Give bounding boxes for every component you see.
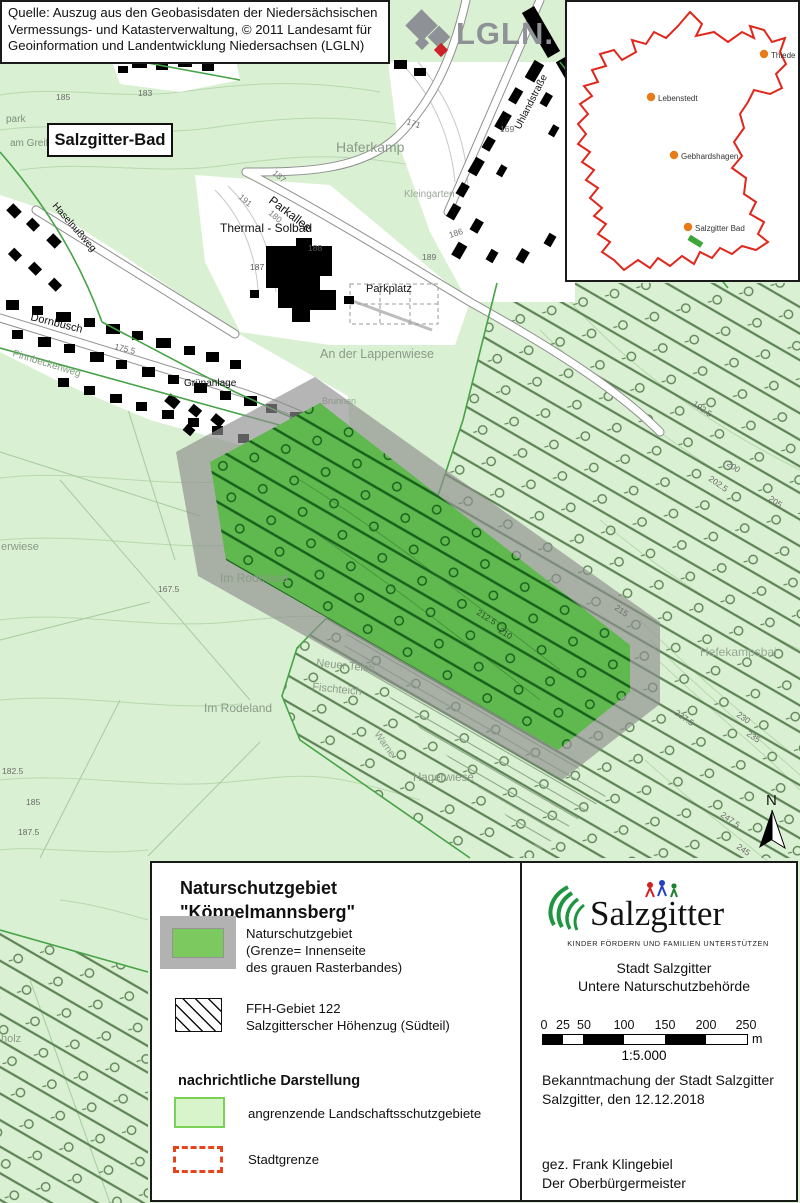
- map-label-im-rodeland-a: Im Rodeland: [220, 571, 288, 585]
- legend-swatch-stadtgrenze: [173, 1146, 223, 1173]
- elevation-label: 185: [56, 92, 70, 102]
- signature-block: gez. Frank Klingebiel Der Oberbürgermeis…: [542, 1155, 686, 1193]
- salzgitter-wordmark: Salzgitter: [590, 894, 724, 933]
- map-label-holz: holz: [1, 1033, 21, 1045]
- inset-place-label: Lebenstedt: [658, 94, 698, 103]
- inset-place-label: Salzgitter Bad: [695, 224, 745, 233]
- scale-tick: 25: [556, 1018, 570, 1032]
- authority-line1: Stadt Salzgitter: [544, 959, 784, 977]
- signature-line2: Der Oberbürgermeister: [542, 1174, 686, 1193]
- map-label-kleingarten: Kleingarten: [404, 189, 455, 200]
- source-note-line3: Geoinformation und Landentwicklung Niede…: [8, 38, 382, 55]
- map-label-erwiese: erwiese: [1, 541, 39, 553]
- announcement-block: Bekanntmachung der Stadt Salzgitter Salz…: [542, 1071, 774, 1109]
- city-boundary: [578, 12, 786, 270]
- announcement-line1: Bekanntmachung der Stadt Salzgitter: [542, 1071, 774, 1090]
- map-label-haferkamp: Haferkamp: [336, 139, 405, 155]
- legend-item-nsg: Naturschutzgebiet (Grenze= Innenseite de…: [246, 925, 402, 976]
- map-label-brunnen: Brunnen: [322, 396, 356, 406]
- scale-tick: 50: [577, 1018, 591, 1032]
- legend-item-ffh-line2: Salzgitterscher Höhenzug (Südteil): [246, 1017, 450, 1034]
- elevation-label: 169: [500, 124, 514, 134]
- authority-block: Stadt Salzgitter Untere Naturschutzbehör…: [544, 959, 784, 995]
- overview-inset: Thiede Lebenstedt Gebhardshagen Salzgitt…: [565, 0, 800, 282]
- salzgitter-tagline: KINDER FÖRDERN UND FAMILIEN UNTERSTÜTZEN: [548, 939, 788, 948]
- signature-line1: gez. Frank Klingebiel: [542, 1155, 686, 1174]
- scale-bar-segments: [542, 1034, 748, 1045]
- map-label-hefekampsbai: Hefekampsbai: [700, 645, 777, 659]
- scale-tick: 250: [736, 1018, 757, 1032]
- elevation-label: 167.5: [158, 584, 180, 594]
- salzgitter-swoosh-icon: [550, 887, 584, 930]
- scale-ratio: 1:5.000: [621, 1048, 666, 1063]
- legend-box: Naturschutzgebiet "Köppelmannsberg" Natu…: [150, 861, 798, 1202]
- scale-bar: 0 25 50 100 150 200 250 m 1:5.000: [542, 1018, 762, 1064]
- elevation-label: 183: [138, 88, 152, 98]
- place-dot: [760, 50, 768, 58]
- map-label-park: park: [6, 114, 26, 125]
- map-label-parkplatz: Parkplatz: [366, 283, 412, 295]
- inset-canvas: Thiede Lebenstedt Gebhardshagen Salzgitt…: [567, 2, 798, 280]
- legend-swatch-nsg: [160, 916, 236, 969]
- map-sheet: park am Greif Haferkamp Kleingarten Uhla…: [0, 0, 800, 1203]
- legend-swatch-ffh: [175, 998, 222, 1032]
- elevation-label: 187: [250, 262, 264, 272]
- legend-item-nsg-line2: (Grenze= Innenseite: [246, 942, 402, 959]
- legend-item-ffh: FFH-Gebiet 122 Salzgitterscher Höhenzug …: [246, 1000, 450, 1034]
- elevation-label: 187.5: [18, 827, 40, 837]
- legend-item-ffh-line1: FFH-Gebiet 122: [246, 1000, 450, 1017]
- map-label-hagerwiese: Hagerwiese: [413, 772, 474, 784]
- nsg-location-marker: [687, 235, 703, 248]
- scale-tick: 0: [541, 1018, 548, 1032]
- place-dot: [670, 151, 678, 159]
- map-label-lappenwiese: An der Lappenwiese: [320, 347, 434, 361]
- legend-divider: [520, 863, 522, 1200]
- city-name-box: Salzgitter-Bad: [47, 123, 173, 157]
- map-label-gruenanlage: Grünanlage: [184, 378, 237, 389]
- legend-item-lsg: angrenzende Landschaftsschutzgebiete: [248, 1105, 481, 1122]
- legend-swatch-nsg-core: [172, 928, 224, 958]
- source-note-line1: Quelle: Auszug aus den Geobasisdaten der…: [8, 5, 382, 22]
- source-note-line2: Vermessungs- und Katasterverwaltung, © 2…: [8, 22, 382, 39]
- authority-line2: Untere Naturschutzbehörde: [544, 977, 784, 995]
- elevation-label: 185: [26, 797, 40, 807]
- inset-place-label: Thiede: [771, 51, 796, 60]
- legend-heading-info: nachrichtliche Darstellung: [178, 1073, 360, 1089]
- legend-title-line1: Naturschutzgebiet: [180, 876, 355, 900]
- legend-item-stadtgrenze: Stadtgrenze: [248, 1151, 319, 1168]
- scale-tick: 100: [614, 1018, 635, 1032]
- announcement-line2: Salzgitter, den 12.12.2018: [542, 1090, 774, 1109]
- elevation-label: 188: [308, 243, 322, 253]
- elevation-label: 189: [422, 252, 436, 262]
- map-label-am-greif: am Greif: [10, 138, 49, 149]
- salzgitter-logo: Salzgitter: [544, 879, 784, 941]
- legend-item-nsg-line3: des grauen Rasterbandes): [246, 959, 402, 976]
- map-label-thermal-solbad: Thermal - Solbad: [220, 221, 312, 235]
- lgln-logo: LGLN.: [398, 2, 576, 64]
- source-note: Quelle: Auszug aus den Geobasisdaten der…: [0, 0, 390, 64]
- legend-swatch-lsg: [174, 1097, 225, 1128]
- scale-unit: m: [752, 1032, 762, 1046]
- place-dot: [684, 223, 692, 231]
- lgln-wordmark: LGLN.: [456, 16, 554, 52]
- map-label-im-rodeland-b: Im Rodeland: [204, 701, 272, 715]
- place-dot: [647, 93, 655, 101]
- north-label: N: [766, 792, 777, 809]
- inset-place-label: Gebhardshagen: [681, 152, 738, 161]
- legend-item-nsg-line1: Naturschutzgebiet: [246, 925, 402, 942]
- scale-tick: 150: [655, 1018, 676, 1032]
- scale-tick: 200: [696, 1018, 717, 1032]
- elevation-label: 182.5: [2, 766, 24, 776]
